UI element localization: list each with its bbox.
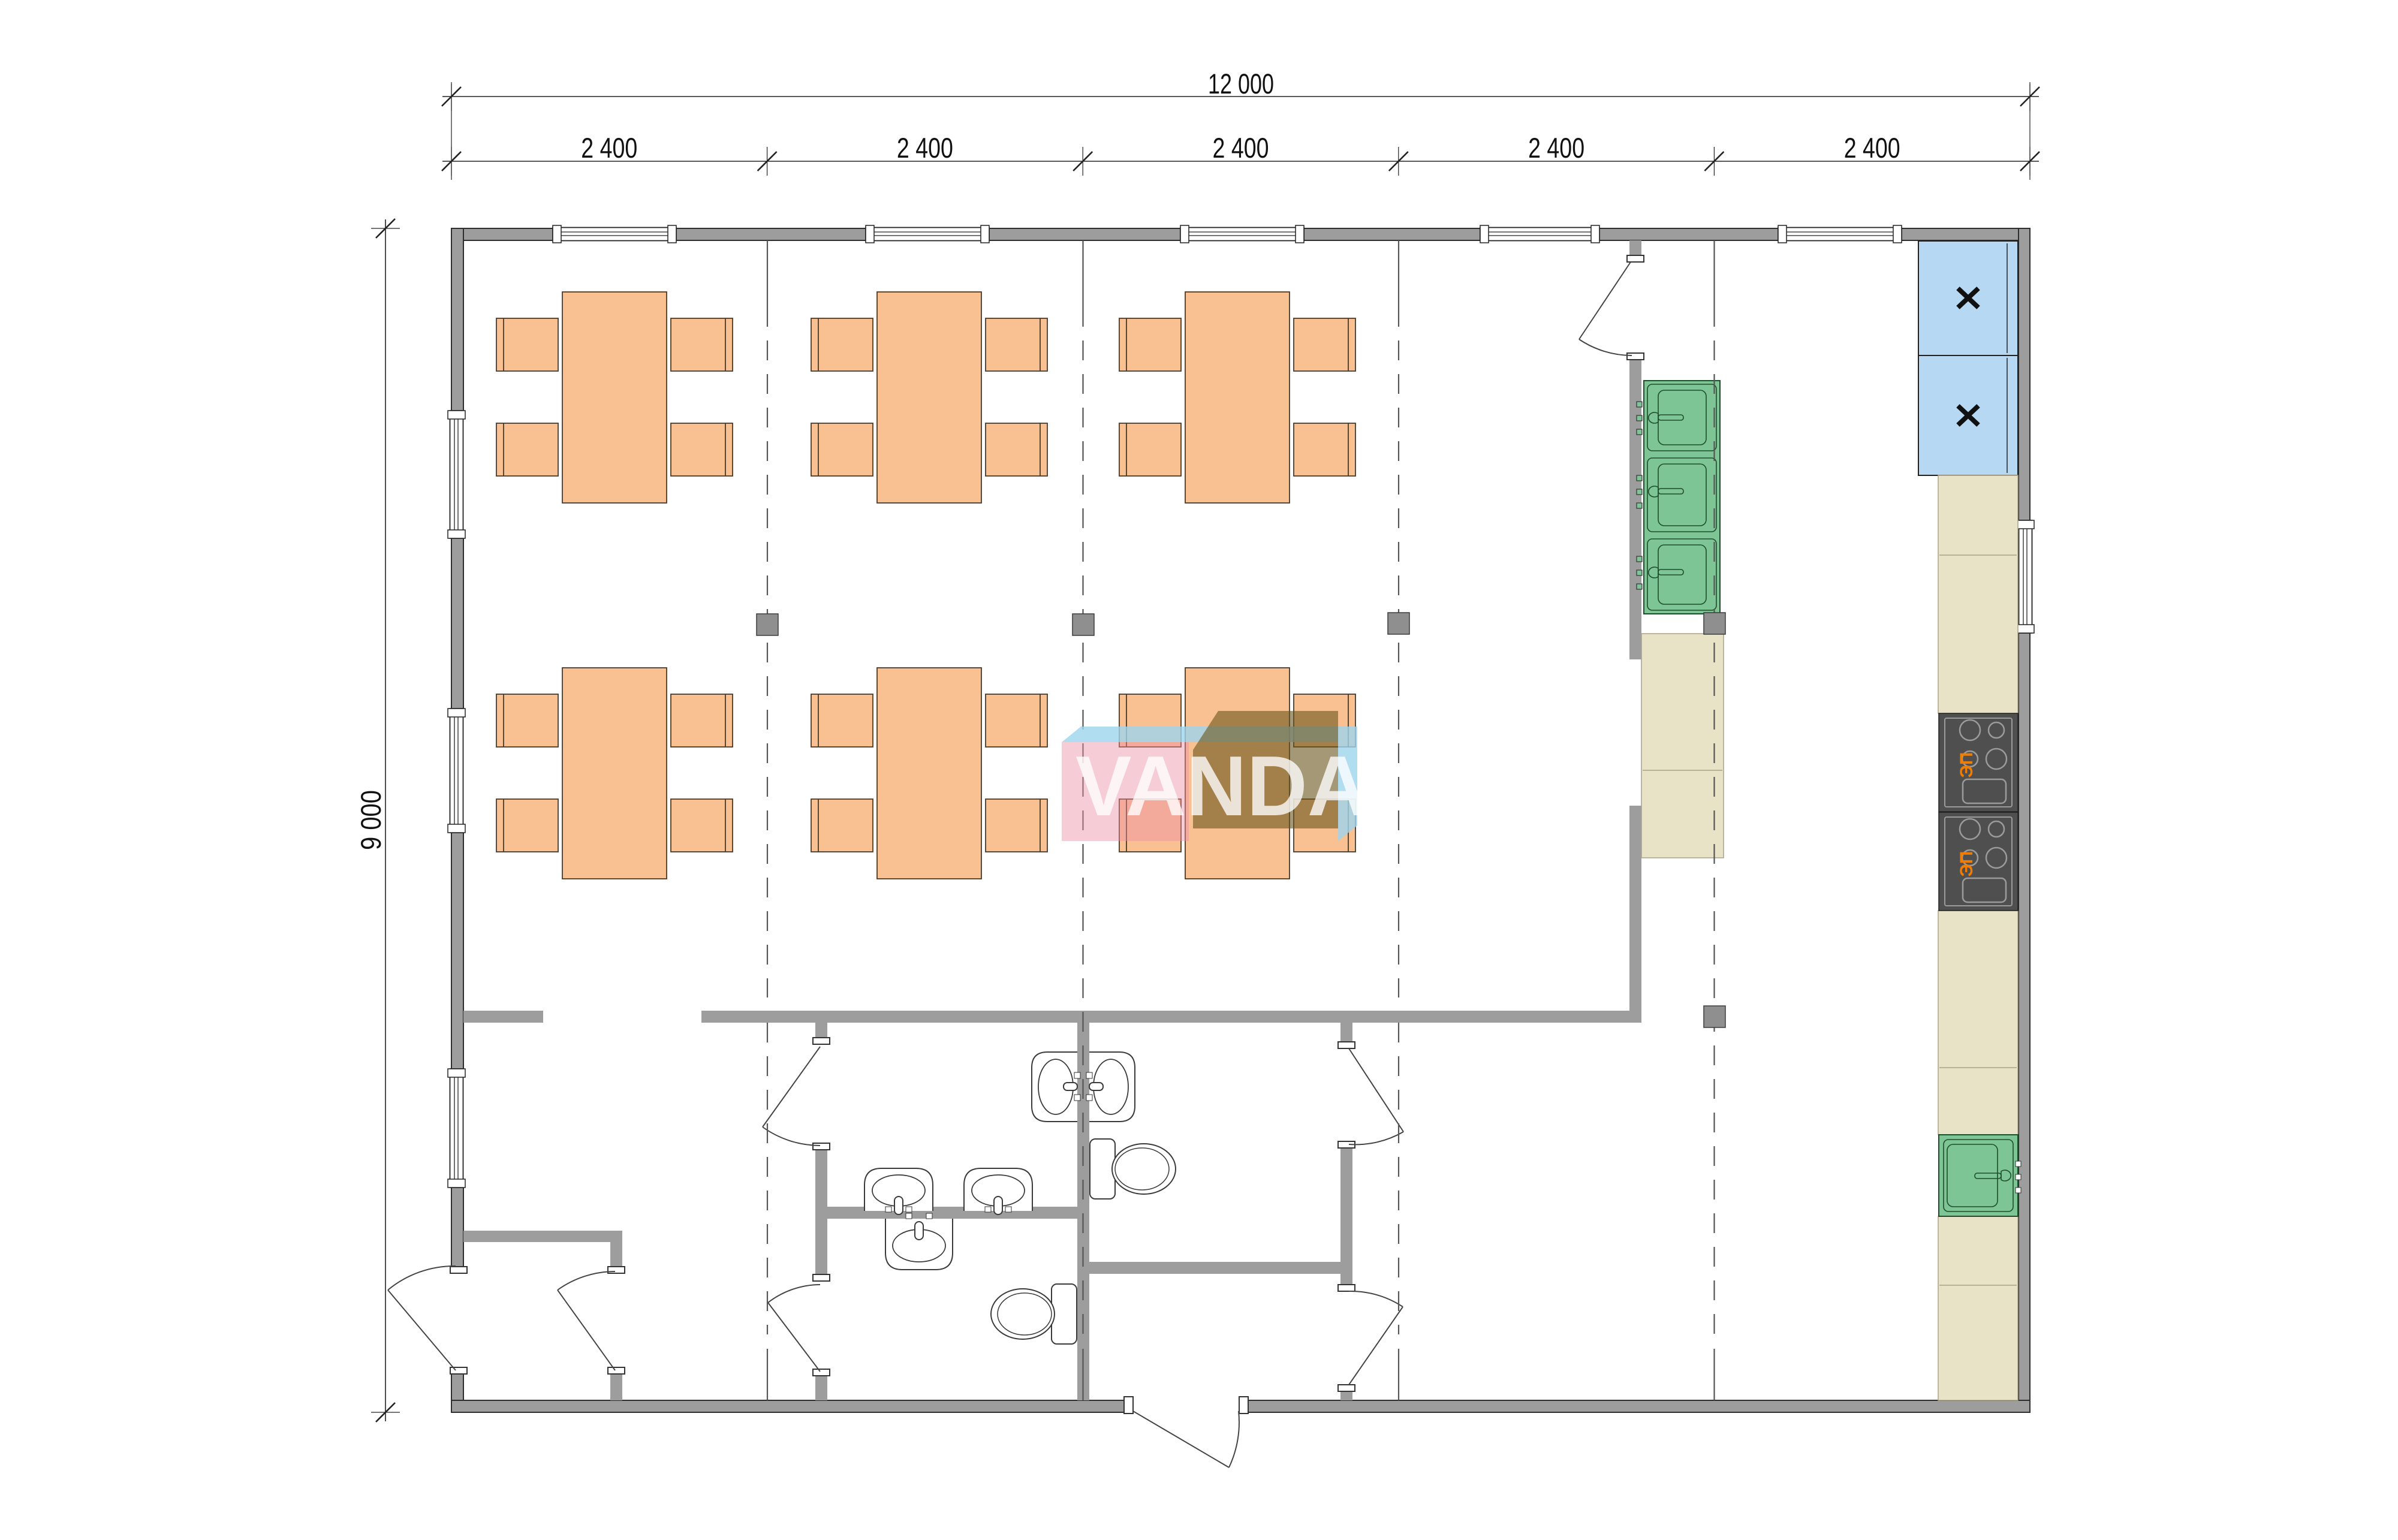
svg-text:ЭП: ЭП — [1957, 752, 1977, 778]
svg-text:2 400: 2 400 — [1844, 132, 1900, 164]
svg-text:9 000: 9 000 — [355, 790, 387, 850]
svg-text:12 000: 12 000 — [1208, 68, 1274, 100]
svg-text:2 400: 2 400 — [897, 132, 953, 164]
svg-text:VANDA: VANDA — [1076, 739, 1368, 834]
svg-text:2 400: 2 400 — [581, 132, 637, 164]
svg-text:2 400: 2 400 — [1213, 132, 1269, 164]
svg-text:ЭП: ЭП — [1957, 851, 1977, 877]
svg-text:2 400: 2 400 — [1528, 132, 1584, 164]
